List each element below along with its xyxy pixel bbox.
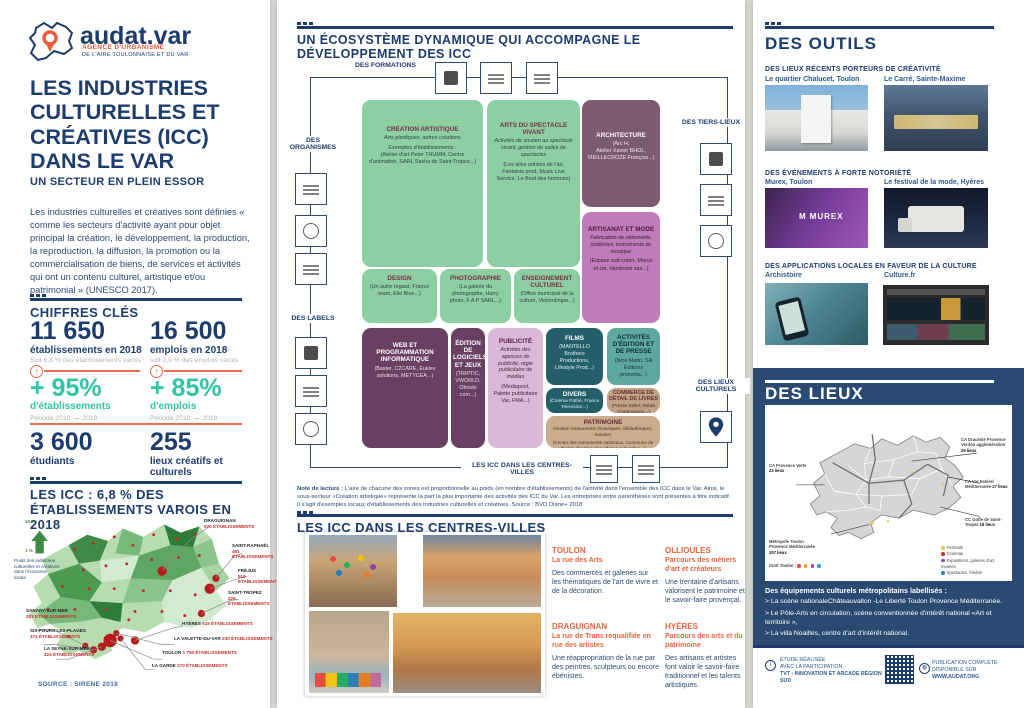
city-value: 1 750 ÉTABLISSEMENTS (183, 650, 237, 655)
group-label-tiers-lieux: DES TIERS-LIEUX (677, 118, 745, 127)
label-logo-box (295, 413, 327, 445)
orange-divider (44, 370, 140, 372)
sector-title: ACTIVITÉS D'ÉDITION ET DE PRESSE (612, 334, 655, 356)
sector-box-architecture: ARCHITECTURE (Arc H, Atelier Xavier BHOL… (582, 100, 660, 207)
site-hero-shape (887, 298, 985, 320)
school-logo-icon (444, 71, 458, 85)
note-label: Note de lecture : (297, 486, 343, 492)
territory-name: Dont Toulon : (769, 563, 796, 568)
lmap-label-golfe-st-tropez: CC Golfe de Saint-Tropez 18 lieux (965, 517, 1009, 528)
city-block-toulon: TOULON La rue des Arts Des commerces et … (552, 546, 659, 596)
legend-item: Expositions, galeries d'art, musées (941, 558, 1009, 571)
photo-festival-mode (884, 188, 988, 248)
equipement-item: > Le Pôle-Arts en circulation, scène con… (765, 610, 1013, 628)
sector-box-enseignement-culturel: ENSEIGNEMENT CULTUREL (Office municipal … (514, 269, 580, 323)
item-culture-fr-label: Culture.fr (884, 272, 916, 279)
murex-logo: MMUREX (799, 212, 844, 221)
city-name: DRAGUIGNAN (204, 518, 236, 523)
right-panel: DES OUTILS DES LIEUX RÉCENTS PORTEURS DE… (753, 0, 1024, 708)
sector-examples: (Espace sud coton, Marca et cie, Vandore… (587, 258, 655, 272)
map-source: SOURCE : SIRENE 2018 (38, 681, 118, 688)
growth-etabs-period: Période 2010 → 2018 (30, 413, 97, 422)
map-label-la-valette: LA VALETTE-DU-VAR 230 ÉTABLISSEMENTS (174, 636, 273, 642)
section-dashes (765, 22, 781, 25)
sector-title: PHOTOGRAPHIE (445, 275, 506, 282)
territory-name: CA Provence Verte (769, 463, 806, 468)
street-photo-arch-lane (423, 535, 541, 607)
label-logo-icon (303, 421, 319, 437)
sector-examples: (Baxter, C2CARE, Eukles solutions, METYC… (367, 366, 443, 380)
item-murex-label: Murex, Toulon (765, 179, 812, 186)
map-label-six-fours: SIX-FOURS-LES-PLAGES 371 ÉTABLISSEMENTS (30, 628, 94, 639)
sector-examples: Exemples d'établissements : (Atelier d'a… (367, 145, 478, 166)
sector-box-divers: DIVERS (Cinéma Pathé, France Television.… (546, 388, 603, 413)
map-label-la-seyne: LA SEYNE-SUR-MER 424 ÉTABLISSEMENTS (44, 646, 108, 657)
lmap-label-dracenie: CA Dracénie Provence Verdon agglomératio… (961, 437, 1009, 453)
group-label-labels: DES LABELS (283, 314, 343, 323)
white-building-shape (801, 95, 831, 143)
growth-emplois-value: + 85% (150, 374, 222, 403)
item-carre-label: Le Carré, Sainte-Maxime (884, 76, 965, 83)
map-legend-caption: Poids des industries culturelles et créa… (14, 558, 60, 581)
territory-name: CA Dracénie Provence Verdon agglomératio… (961, 437, 1006, 447)
organisme-logo-icon (303, 183, 319, 195)
territory-value: 23 lieux (769, 468, 784, 473)
legend-dot-icon (941, 559, 945, 563)
sector-box-spectacle-vivant: ARTS DU SPECTACLE VIVANT Activités de so… (487, 100, 580, 267)
equipements-heading: Des équipements culturels métropolitains… (765, 586, 1013, 595)
section-rule-white (765, 380, 994, 383)
city-value: 424 ÉTABLISSEMENTS (44, 652, 94, 657)
flags-decoration (327, 553, 379, 579)
city-value: 283 ÉTABLISSEMENTS (26, 614, 76, 619)
city-subtitle: La rue de Trans requalifiée en rue des a… (552, 633, 659, 651)
photo-archistoire (765, 283, 868, 345)
growth-emplois-label: d'emplois (150, 401, 196, 412)
arrow-right-icon: → (72, 413, 80, 422)
sector-examples: (Mediapost, Palette publicitaire Var, FM… (493, 384, 538, 405)
city-name: HYÈRES (182, 621, 201, 626)
sector-title: WEB ET PROGRAMMATION INFORMATIQUE (367, 342, 443, 364)
city-name: DRAGUIGNAN (552, 622, 659, 631)
left-panel: audat.var AGENCE D'URBANISME DE L'AIRE T… (0, 0, 270, 708)
sector-box-patrimoine: PATRIMOINE Gestion monuments historiques… (546, 416, 660, 448)
sector-title: FILMS (551, 335, 598, 342)
item-archistoire-label: Archistoire (765, 272, 802, 279)
map-label-hyeres: HYÈRES 515 ÉTABLISSEMENTS (182, 621, 253, 627)
organisme-logo-box (295, 215, 327, 247)
section-dashes (297, 22, 313, 25)
section-dashes (30, 477, 46, 480)
lieux-map-card: CA Dracénie Provence Verdon agglomératio… (765, 405, 1012, 581)
map-label-saint-tropez: SAINT-TROPEZ 226 ÉTABLISSEMENTS (228, 590, 268, 607)
qr-code (885, 655, 914, 684)
city-description: Des commerces et galeries sur les thémat… (552, 569, 659, 596)
ecosystem-header: UN ÉCOSYSTÈME DYNAMIQUE QUI ACCOMPAGNE L… (297, 33, 745, 61)
item-chalucet-label: Le quartier Chalucet, Toulon (765, 76, 859, 83)
sector-box-edition-logiciels: ÉDITION DE LOGICIELS ET JEUX (TRIPTIC, V… (451, 328, 485, 448)
sector-title: DIVERS (548, 391, 601, 398)
sector-examples: (MANTELLO Brothers Productions, Lifestyl… (551, 344, 598, 372)
city-name: LA GARDE (152, 663, 176, 668)
outils-header: DES OUTILS (765, 34, 877, 54)
city-name: LA SEYNE-SUR-MER (44, 646, 90, 651)
city-name: SAINT-RAPHAËL (232, 543, 269, 548)
location-pin-icon (707, 416, 725, 438)
growth-etabs-value: + 95% (30, 374, 102, 403)
legend-label: Cinémas (947, 551, 964, 556)
street-photo-yellow-lane (393, 613, 541, 693)
city-block-hyeres: HYÈRES Parcours des arts et du patrimoin… (665, 622, 745, 690)
photo-murex: MMUREX (765, 188, 868, 248)
sector-examples: (Nice Matin, SA Éditions prosveta...) (612, 358, 655, 379)
sector-desc: Fabrication de vêtements, joailleries, i… (587, 235, 655, 255)
sector-box-edition-presse: ACTIVITÉS D'ÉDITION ET DE PRESSE (Nice M… (607, 328, 660, 385)
photo-le-carre (884, 85, 988, 151)
sector-title: ENSEIGNEMENT CULTUREL (519, 275, 575, 289)
group-label-lieux-culturels: DES LIEUX CULTURELS (682, 378, 750, 394)
legend-dot-purple (811, 564, 815, 568)
sector-examples: (Presse Zeller, Relais Charlemagne...) (609, 403, 658, 413)
territory-value: 27 lieux (992, 484, 1007, 489)
legend-label: Festivals (947, 545, 964, 550)
territory-value: 18 lieux (980, 522, 995, 527)
label-logo-box (295, 375, 327, 407)
map-label-toulon: TOULON 1 750 ÉTABLISSEMENTS (162, 650, 237, 656)
city-description: Une réappropriation de la rue par des pe… (552, 654, 659, 681)
footer-credit: ÉTUDE RÉALISÉE AVEC LA PARTICIPATION TVT… (780, 657, 882, 686)
group-label-formations: DES FORMATIONS (353, 61, 418, 70)
footer-credit-line2: AVEC LA PARTICIPATION (780, 664, 843, 670)
organisme-logo-box (295, 173, 327, 205)
footer-publication: PUBLICATION COMPLÈTE DISPONIBLE SUR WWW.… (932, 660, 1014, 681)
map-scale-top: 10 % (25, 519, 35, 525)
sector-examples: (Un autre regard, France team, Elio Blue… (367, 284, 432, 298)
sector-title: ÉDITION DE LOGICIELS ET JEUX (453, 340, 483, 369)
sector-box-photographie: PHOTOGRAPHIE (La galerie du photographe,… (440, 269, 511, 323)
formation-logo-box (435, 62, 467, 94)
territory-value: 107 lieux (769, 550, 787, 555)
city-name: SAINT-TROPEZ (228, 590, 262, 595)
page-subtitle: UN SECTEUR EN PLEIN ESSOR (30, 176, 204, 188)
note-text: L'aire de chacune des zones est proporti… (297, 486, 730, 508)
street-photo-painted-steps (309, 611, 389, 693)
lieux-header: DES LIEUX (765, 384, 864, 404)
group-label-centres-villes: LES ICC DANS LES CENTRES-VILLES (461, 461, 583, 477)
label-logo-icon (304, 346, 318, 360)
sector-title: DESIGN (367, 275, 432, 282)
sector-examples: (Les ailes artistes de l'air, Fantaisie … (492, 162, 575, 183)
city-value: 371 ÉTABLISSEMENTS (30, 634, 80, 639)
murex-wordmark: MUREX (810, 212, 844, 221)
stat-etudiants-value: 3 600 (30, 428, 93, 457)
site-tiles-shape (887, 324, 985, 340)
sector-desc: Gestion monuments historiques, bibliothè… (550, 427, 656, 439)
legend-item: Spectacles, théâtre (941, 570, 1009, 576)
section-rule (297, 26, 733, 29)
stat-etudiants-label: étudiants (30, 456, 74, 467)
sector-box-films: FILMS (MANTELLO Brothers Productions, Li… (546, 328, 603, 385)
tiers-lieu-logo-box (700, 184, 732, 216)
city-description: Une trentaine d'artisans valorisent le p… (665, 578, 745, 605)
growth-etabs-label: d'établissements (30, 401, 111, 412)
legend-dot-red (797, 564, 801, 568)
map-label-draguignan: DRAGUIGNAN 570 ÉTABLISSEMENTS (204, 518, 264, 529)
equipement-item: > La scène nationaleChâteauvallon -Le Li… (765, 598, 1013, 607)
centre-ville-icon-box (590, 455, 618, 483)
territory-name: CA Var Estérel Méditerranée (965, 479, 994, 489)
info-icon: i (765, 660, 776, 671)
sector-box-publicite: PUBLICITÉ Activités des agences de publi… (488, 328, 543, 448)
city-value: 515 ÉTABLISSEMENTS (202, 621, 252, 626)
stat-lieux-label: lieux créatifs et culturels (150, 456, 245, 478)
city-value: 230 ÉTABLISSEMENTS (222, 636, 272, 641)
formation-logo-box (526, 62, 558, 94)
murex-m-icon: M (799, 212, 807, 221)
legend-dot-icon (941, 546, 945, 550)
school-logo-icon (488, 72, 504, 84)
group-label-organismes: DES ORGANISMES (281, 136, 345, 152)
phone-screen-shape (778, 301, 805, 335)
centre-ville-icon-box (632, 455, 660, 483)
city-description: Des artisans et artistes font valoir le … (665, 654, 745, 690)
outils-section-3-label: DES APPLICATIONS LOCALES EN FAVEUR DE LA… (765, 263, 977, 270)
sector-title: CRÉATION ARTISTIQUE (367, 126, 478, 133)
tiers-lieu-logo-icon (708, 194, 724, 206)
sector-box-artisanat-mode: ARTISANAT ET MODE Fabrication de vêtemen… (582, 212, 660, 323)
equipement-item: > La villa Noailles, centre d'art d'inté… (765, 630, 1013, 639)
footer-pub-line2: DISPONIBLE SUR (932, 667, 976, 673)
globe-icon: ◍ (919, 663, 930, 674)
period-to: 2018 (82, 415, 97, 422)
sector-box-design: DESIGN (Un autre regard, France team, El… (362, 269, 437, 323)
sector-examples: (TRIPTIC, VWORLD, Oboulo com...) (453, 371, 483, 399)
stat-emplois-value: 16 500 (150, 317, 226, 346)
connector-line (310, 77, 728, 78)
sector-examples: (Arc H, Atelier Xavier BHOL, VIEILLECROZ… (587, 141, 655, 162)
lmap-label-metropole-tpm: Métropole Toulon Provence Méditerranée 1… (769, 539, 823, 555)
city-value: 226 ÉTABLISSEMENTS (228, 596, 270, 607)
city-name: SANARY-SUR-MER (26, 608, 68, 613)
city-name: OLLIOULES (665, 546, 745, 555)
tiers-lieu-logo-box (700, 225, 732, 257)
page-title: LES INDUSTRIES CULTURELLES ET CRÉATIVES … (30, 76, 248, 173)
lit-facade-shape (894, 115, 978, 129)
footer-rule (753, 645, 1024, 648)
footer-credit-partners: TVT - INNOVATION ET ARCADE RÉGION SUD (780, 671, 882, 684)
brand-tagline-2: DE L'AIRE TOULONNAISE ET DU VAR (82, 52, 189, 58)
browser-bar-shape (887, 289, 985, 295)
map-scale-bottom: 1 % (25, 548, 33, 554)
street-photo-card (305, 532, 545, 696)
lieux-culturels-box (700, 411, 732, 443)
legend-label: Spectacles, théâtre (947, 570, 983, 575)
phone-shape (775, 296, 810, 341)
city-value: 270 ÉTABLISSEMENTS (177, 663, 227, 668)
city-value: 570 ÉTABLISSEMENTS (204, 524, 254, 529)
formation-logo-box (480, 62, 512, 94)
map-label-sanary: SANARY-SUR-MER 283 ÉTABLISSEMENTS (26, 608, 90, 619)
city-name: HYÈRES (665, 622, 745, 631)
tiers-lieu-logo-icon (709, 152, 723, 166)
organisme-logo-icon (303, 223, 319, 239)
city-block-ollioules: OLLIOULES Parcours des métiers d'art et … (665, 546, 745, 605)
city-name: TOULON (162, 650, 181, 655)
tiers-lieu-logo-icon (708, 233, 724, 249)
sector-title: PATRIMOINE (550, 419, 656, 426)
lmap-label-provence-verte: CA Provence Verte 23 lieux (769, 463, 809, 474)
center-panel: UN ÉCOSYSTÈME DYNAMIQUE QUI ACCOMPAGNE L… (277, 0, 745, 708)
legend-dot-icon (941, 571, 945, 575)
sector-box-web-programmation: WEB ET PROGRAMMATION INFORMATIQUE (Baxte… (362, 328, 448, 448)
sector-box-commerce-livres: COMMERCE DE DÉTAIL DE LIVRES (Presse Zel… (607, 388, 660, 413)
sector-title: ARCHITECTURE (587, 132, 655, 139)
brand-tagline-1: AGENCE D'URBANISME (82, 44, 164, 51)
section-dashes (30, 294, 46, 297)
period-from: Période 2010 (150, 415, 190, 422)
map-label-saint-raphael: SAINT-RAPHAËL 451 ÉTABLISSEMENTS (232, 543, 270, 560)
city-value: 451 ÉTABLISSEMENTS (232, 549, 274, 560)
sector-desc: Arts plastiques, autres créations (367, 135, 478, 142)
sector-examples: (Centre des monuments nationaux, Commune… (550, 440, 656, 448)
street-photo-toulon-flags (309, 535, 397, 607)
sector-examples: (Cinéma Pathé, France Television...) (548, 399, 601, 411)
orange-divider (30, 423, 242, 425)
tiers-lieu-logo-box (700, 143, 732, 175)
sector-title: ARTISANAT ET MODE (587, 226, 655, 233)
audat-var-logo-icon (26, 20, 76, 64)
sector-title: COMMERCE DE DÉTAIL DE LIVRES (609, 390, 658, 402)
section-rule (30, 481, 242, 484)
outils-section-1-label: DES LIEUX RÉCENTS PORTEURS DE CRÉATIVITÉ (765, 66, 941, 73)
organisme-logo-box (295, 253, 327, 285)
stat-lieux-value: 255 (150, 428, 192, 457)
sector-examples: (La galerie du photographe, Harry photo,… (445, 284, 506, 305)
period-to: 2018 (202, 415, 217, 422)
city-value: 510 ÉTABLISSEMENTS (238, 574, 280, 585)
map-label-frejus: FRÉJUS 510 ÉTABLISSEMENTS (238, 568, 270, 585)
photo-chalucet (765, 85, 868, 151)
legend-dot-blue (817, 564, 821, 568)
sector-desc: Activités de soutien au spectacle vivant… (492, 138, 575, 158)
stat-emplois-sub: soit 3,9 % des emplois varois (150, 357, 238, 364)
stat-emplois-label: emplois en 2018 (150, 345, 227, 356)
map-label-la-garde: LA GARDE 270 ÉTABLISSEMENTS (152, 663, 228, 669)
stat-etablissements-sub: Soit 6,8 % des établissements varois (30, 357, 141, 364)
legend-label: Expositions, galeries d'art, musées (941, 558, 995, 569)
footer-website: WWW.AUDAT.ORG (932, 674, 979, 680)
stat-etablissements-label: établissements en 2018 (30, 345, 142, 356)
section-rule (297, 514, 733, 517)
section-rule (30, 298, 242, 301)
label-logo-box (295, 337, 327, 369)
lmap-label-var-esterel: CA Var Estérel Méditerranée 27 lieux (965, 479, 1009, 490)
city-block-draguignan: DRAGUIGNAN La rue de Trans requalifiée e… (552, 622, 659, 681)
orange-divider (164, 370, 242, 372)
city-subtitle: La rue des Arts (552, 557, 659, 566)
villa-shape (908, 206, 964, 232)
arrow-right-icon: → (192, 413, 200, 422)
territory-value: 29 lieux (961, 448, 976, 453)
connector-line (727, 77, 728, 468)
lieux-map-legend: Festivals Cinémas Expositions, galeries … (941, 545, 1009, 576)
city-name: FRÉJUS (238, 568, 256, 573)
outils-section-2-label: DES ÉVÉNEMENTS À FORTE NOTORIÉTÉ (765, 170, 911, 177)
city-name: TOULON (552, 546, 659, 555)
city-subtitle: Parcours des métiers d'art et créateurs (665, 557, 745, 575)
section-rule (765, 26, 994, 29)
photo-culture-fr-site (883, 285, 989, 345)
growth-emplois-period: Période 2010 → 2018 (150, 413, 217, 422)
legend-dot-orange (804, 564, 808, 568)
footer-pub-line1: PUBLICATION COMPLÈTE (932, 660, 998, 666)
label-logo-icon (303, 385, 319, 397)
city-subtitle: Parcours des arts et du patrimoine (665, 633, 745, 651)
university-logo-icon (534, 72, 550, 84)
lmap-label-dont-toulon: Dont Toulon : (769, 563, 849, 568)
stat-etablissements-value: 11 650 (30, 317, 105, 346)
territory-name: Métropole Toulon Provence Méditerranée (769, 539, 815, 549)
sector-desc: Activités des agences de publicité, régi… (493, 347, 538, 381)
intro-paragraph: Les industries culturelles et créatives … (30, 206, 252, 297)
city-name: SIX-FOURS-LES-PLAGES (30, 628, 86, 633)
city-name: LA VALETTE-DU-VAR (174, 636, 221, 641)
street-icon (638, 463, 654, 475)
sector-title: ARTS DU SPECTACLE VIVANT (492, 122, 575, 136)
rainbow-steps-decoration (315, 673, 381, 687)
sector-title: PUBLICITÉ (493, 338, 538, 345)
map-scale-arrow-icon (31, 531, 48, 554)
reading-note: Note de lecture : L'aire de chacune des … (297, 486, 733, 510)
period-from: Période 2010 (30, 415, 70, 422)
sector-examples: (Office municipal de la culture, Violond… (519, 291, 575, 305)
sector-box-creation-artistique: CRÉATION ARTISTIQUE Arts plastiques, aut… (362, 100, 483, 267)
equipements-block: Des équipements culturels métropolitains… (765, 586, 1013, 642)
legend-dot-icon (941, 552, 945, 556)
building-icon (596, 463, 612, 475)
footer-credit-line1: ÉTUDE RÉALISÉE (780, 657, 825, 663)
item-festival-mode-label: Le festival de la mode, Hyères (884, 179, 984, 186)
organisme-logo-icon (303, 263, 319, 275)
villa-wing-shape (898, 218, 912, 232)
